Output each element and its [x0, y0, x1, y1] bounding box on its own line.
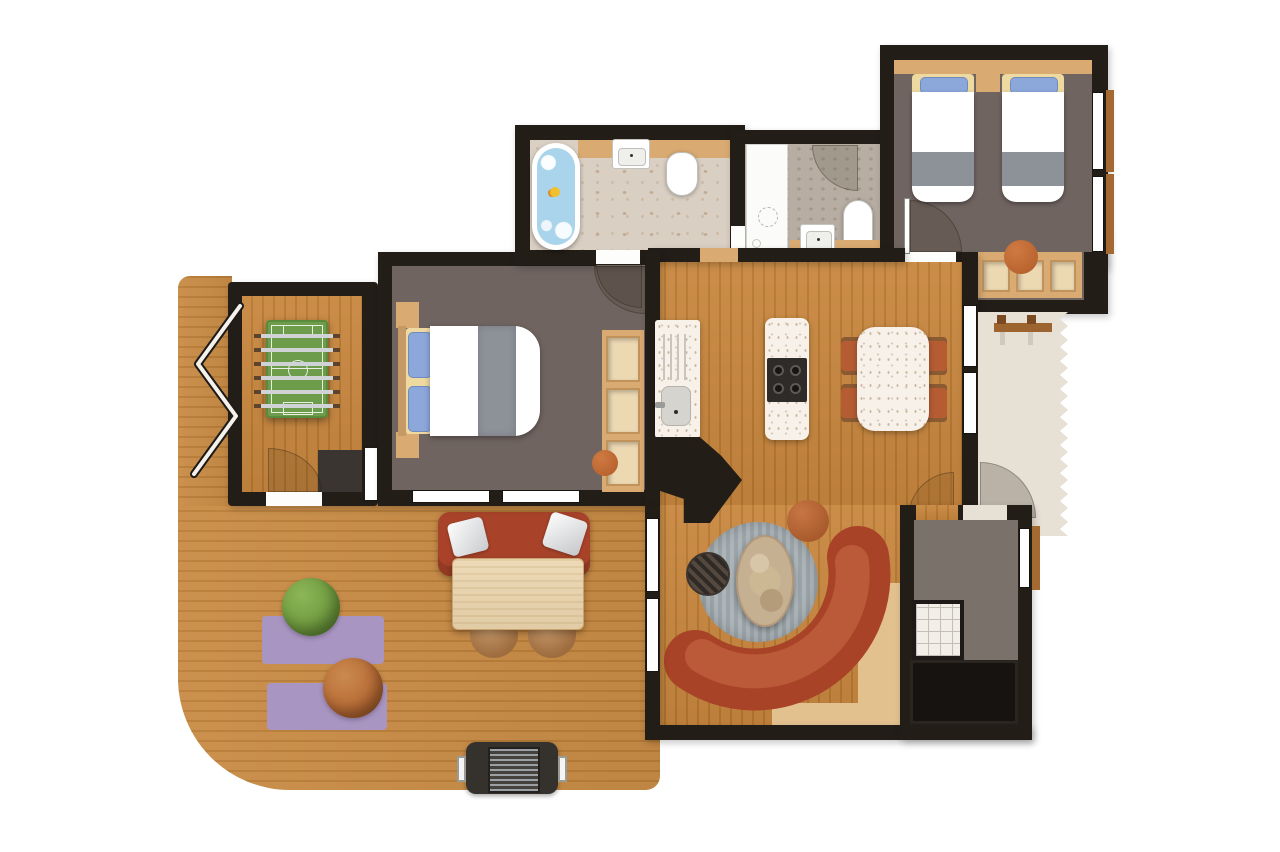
kitchen-faucet [655, 402, 665, 408]
toilet-2 [843, 200, 873, 244]
washbasin-1 [612, 139, 650, 169]
dining-table [857, 327, 929, 431]
twin-bed-right-blanket [1002, 152, 1064, 186]
sink-drain [674, 410, 678, 414]
kitchen-sink [661, 386, 691, 426]
twin-window-sill-1 [1106, 90, 1114, 172]
double-bed [398, 326, 540, 436]
bench-orange-cushion [1004, 240, 1038, 274]
folding-door [186, 298, 246, 480]
entrance-storage-unit [910, 660, 1018, 724]
counter-drainer-grooves [663, 334, 691, 380]
rubber-duck [550, 187, 560, 197]
entrance-door-gap-living [916, 505, 958, 520]
curved-sofa [620, 490, 910, 730]
washbasin-1-bowl [618, 148, 646, 166]
bed-pillow-1 [408, 332, 432, 378]
entrance-window-sill [1032, 526, 1040, 590]
twin-bed-right [1002, 74, 1064, 202]
foosball-rod [254, 362, 340, 366]
twin-window-sill-2 [1106, 174, 1114, 254]
bedroom-orange-pouf [592, 450, 618, 476]
bed-blanket-band [478, 326, 516, 436]
bathtub [532, 143, 580, 250]
cooktop-island [765, 318, 809, 440]
games-room-door-gap [266, 492, 322, 506]
bed-pillow-2 [408, 386, 432, 432]
kitchen-door-threshold [700, 248, 738, 262]
entrance-window [1019, 528, 1030, 588]
twin-nightstand [976, 60, 1000, 92]
grill-grate [488, 747, 540, 793]
twin-window-2 [1092, 176, 1104, 252]
terrace-bench-leg-1 [1000, 332, 1005, 345]
foosball-rod [254, 390, 340, 394]
burner [790, 383, 801, 394]
kitchen-top-wall [648, 248, 905, 262]
terrace-bench-knob-1 [997, 315, 1006, 324]
hall-door [363, 446, 379, 502]
shower-drain [758, 207, 778, 227]
master-window-1 [412, 490, 490, 503]
foosball-rod [254, 404, 340, 408]
bench-compartment-3 [1050, 260, 1076, 292]
shower-control [752, 239, 761, 248]
washbasin-2-drain [817, 238, 820, 241]
grill-handle-left [457, 756, 466, 782]
burner [773, 383, 784, 394]
barbecue-grill [466, 742, 558, 794]
terrace-wall-bench [994, 323, 1052, 332]
games-room-storage-block [318, 450, 362, 492]
living-window-2 [646, 598, 659, 672]
bed-headboard [398, 326, 406, 436]
sink-counter [655, 320, 700, 438]
foosball-rod [254, 334, 340, 338]
twin-window-1 [1092, 92, 1104, 170]
living-window-1 [646, 518, 659, 592]
twin-bed-left-blanket [912, 152, 974, 186]
deck-table [452, 558, 584, 630]
shower [746, 144, 788, 254]
burner [773, 365, 784, 376]
bathroom-counter [578, 140, 730, 158]
foosball-rod [254, 348, 340, 352]
grill-handle-right [558, 756, 567, 782]
orange-beanbag [323, 658, 383, 718]
toilet-1 [666, 152, 698, 196]
wardrobe-shelf-1 [606, 336, 640, 382]
twin-bed-left [912, 74, 974, 202]
entrance-door-gap-terrace [963, 505, 1007, 520]
burner [790, 365, 801, 376]
tile-mat [912, 600, 964, 660]
terrace-bench-leg-2 [1028, 332, 1033, 345]
floor-plan [0, 0, 1280, 852]
green-beanbag [282, 578, 340, 636]
master-window-2 [502, 490, 580, 503]
family-bathroom-door-gap [596, 250, 640, 264]
terrace-bench-knob-2 [1027, 315, 1036, 324]
washbasin-1-drain [630, 154, 633, 157]
cooktop [767, 358, 807, 402]
kitchen-window-2 [963, 372, 977, 434]
wardrobe-shelf-2 [606, 388, 640, 434]
foosball-rod [254, 376, 340, 380]
nightstand-top [396, 302, 419, 328]
kitchen-window-1 [963, 305, 977, 367]
